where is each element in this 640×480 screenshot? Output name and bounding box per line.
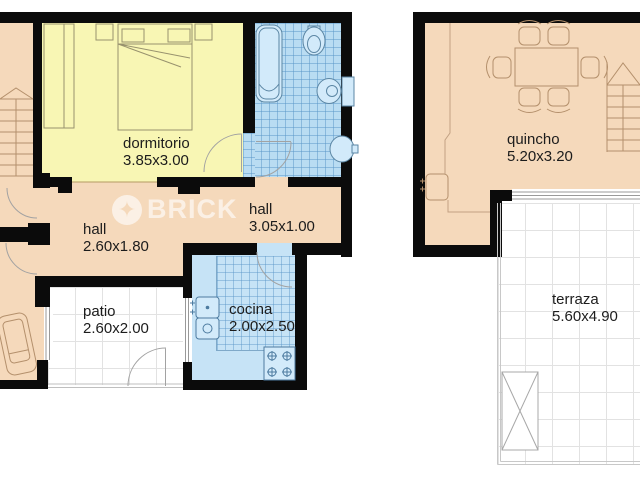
room-label-hall-right: hall 3.05x1.00	[249, 201, 315, 235]
wall	[58, 187, 72, 193]
room-label-cocina: cocina 2.00x2.50	[229, 301, 295, 335]
wall	[295, 243, 307, 390]
wall	[35, 276, 50, 307]
wall	[413, 12, 640, 23]
room-bathroom	[253, 23, 341, 177]
wall	[183, 243, 257, 255]
wall	[341, 12, 352, 257]
window	[72, 182, 157, 187]
wall	[490, 190, 512, 201]
room-dims: 5.60x4.90	[552, 308, 618, 325]
wall	[413, 245, 502, 257]
room-terraza	[498, 203, 640, 465]
room-dims: 2.00x2.50	[229, 318, 295, 335]
room-name: cocina	[229, 301, 295, 318]
room-name: patio	[83, 303, 149, 320]
room-name: hall	[249, 201, 315, 218]
room-dims: 3.85x3.00	[123, 152, 190, 169]
room-label-terraza: terraza 5.60x4.90	[552, 291, 618, 325]
wall	[288, 177, 341, 187]
wall	[413, 12, 425, 257]
wall	[183, 380, 307, 390]
wall	[33, 15, 42, 183]
wall	[183, 248, 192, 298]
room-dims: 2.60x1.80	[83, 238, 149, 255]
bathroom-entry-strip	[243, 133, 255, 177]
room-dims: 3.05x1.00	[249, 218, 315, 235]
room-dims: 2.60x2.00	[83, 320, 149, 337]
wall	[157, 177, 255, 187]
window	[44, 306, 53, 362]
wall	[0, 12, 352, 23]
room-name: dormitorio	[123, 135, 190, 152]
wall	[0, 380, 48, 389]
wall	[28, 223, 50, 245]
room-name: hall	[83, 221, 149, 238]
floor-plan: dormitorio 3.85x3.00 hall 2.60x1.80 hall…	[0, 0, 640, 480]
room-label-dormitorio: dormitorio 3.85x3.00	[123, 135, 190, 169]
room-name: terraza	[552, 291, 618, 308]
window	[183, 297, 192, 363]
room-label-patio: patio 2.60x2.00	[83, 303, 149, 337]
room-name: quincho	[507, 131, 573, 148]
wall	[47, 276, 183, 287]
room-label-hall-left: hall 2.60x1.80	[83, 221, 149, 255]
window	[512, 189, 640, 202]
room-dims: 5.20x3.20	[507, 148, 573, 165]
wall	[178, 187, 200, 194]
room-label-quincho: quincho 5.20x3.20	[507, 131, 573, 165]
wall	[243, 22, 255, 133]
wall	[33, 173, 50, 188]
